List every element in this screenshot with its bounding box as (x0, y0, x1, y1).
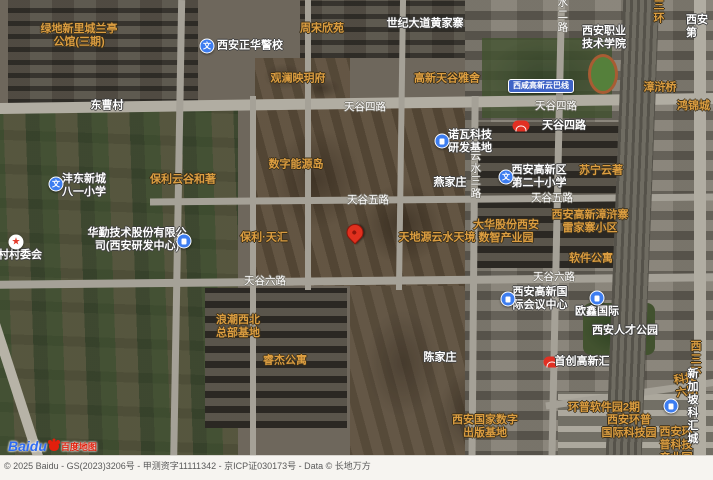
poi-label-vocational-college[interactable]: 西安职业 技术学院 (582, 25, 626, 51)
poi-label-huanpu-phase2[interactable]: 环普软件园2期 (568, 402, 640, 415)
poi-label-suning-yunzhu[interactable]: 苏宁云著 (579, 165, 623, 178)
poi-label-ruijie-apartment[interactable]: 睿杰公寓 (263, 355, 307, 368)
poi-label-zhenghua-school[interactable]: 西安正华警校 (217, 40, 283, 53)
poi-label-talent-park[interactable]: 西安人才公园 (592, 325, 658, 338)
poi-label-village-committee[interactable]: 村村委会 (0, 249, 42, 262)
poi-label-langchao-base[interactable]: 浪潮西北 总部基地 (216, 314, 260, 340)
poi-label-digital-publishing[interactable]: 西安国家数字 出版基地 (452, 414, 518, 440)
school-icon[interactable]: 文 (200, 39, 215, 54)
poi-label-greenland-lanting[interactable]: 绿地新里城兰亭 公馆(三期) (41, 23, 118, 49)
stadium-track (588, 54, 618, 94)
poi-label-huanpu-intl[interactable]: 西安环普 国际科技园 (602, 414, 657, 440)
company-icon[interactable] (177, 234, 192, 249)
school-icon-glyph: 文 (502, 173, 510, 181)
company-icon[interactable] (590, 291, 605, 306)
road-label-yunshui3: 云水三路 (469, 150, 481, 200)
building-glyph (595, 295, 600, 301)
company-icon[interactable] (664, 399, 679, 414)
poi-label-chenjiazhuang[interactable]: 陈家庄 (424, 352, 457, 365)
poi-label-dongcaocun[interactable]: 东曹村 (91, 100, 124, 113)
road-label-tiangu6-west: 天谷六路 (244, 275, 286, 287)
poi-label-kehuicheng[interactable]: 新加坡 科汇城 (683, 368, 703, 446)
road-label-tiangu5-east: 天谷五路 (531, 192, 573, 204)
yunba-logo-swoosh (516, 126, 527, 132)
poi-label-software-apartment[interactable]: 软件公寓 (569, 253, 613, 266)
poi-label-zhousong-xinyuan[interactable]: 周宋欣苑 (300, 23, 344, 36)
poi-label-bayi-school[interactable]: 沣东新城 八一小学 (62, 173, 106, 199)
baidu-wordmark: Baidu (8, 438, 47, 454)
baidu-maps-label: 百度地图 (61, 440, 97, 453)
school-icon-glyph: 文 (52, 180, 60, 188)
station-label-tiangu4[interactable]: 天谷四路 (542, 120, 586, 133)
building-glyph (440, 138, 445, 144)
satellite-patch-residential-topleft (8, 0, 198, 104)
baidu-logo: Baidu 百度地图 (8, 438, 97, 454)
map-canvas[interactable]: 绿地新里城兰亭 公馆(三期) 周宋欣苑 观澜映玥府 高新天谷雅舍 鸿锦城 漳浒桥… (0, 0, 713, 480)
company-icon[interactable] (435, 134, 450, 149)
poi-label-digital-energy-island[interactable]: 数字能源岛 (269, 159, 324, 172)
poi-label-tiandiyuan[interactable]: 天地源云水天境 (399, 232, 476, 245)
building-glyph (669, 403, 674, 409)
building-glyph (182, 238, 187, 244)
satellite-patch-farmland-left (0, 108, 238, 480)
poi-label-baoli-tianhui[interactable]: 保利·天汇 (240, 232, 288, 245)
school-icon[interactable]: 文 (499, 170, 514, 185)
road-label-tiangu4-east: 天谷四路 (535, 100, 577, 112)
road-label-tiangu4-west: 天谷四路 (344, 101, 386, 113)
road-label-tiangu6-east: 天谷六路 (533, 271, 575, 283)
map-pin-dot (351, 230, 357, 236)
yunba-station-icon[interactable] (513, 121, 530, 132)
poi-label-conference-center[interactable]: 西安高新国 际会议中心 (513, 286, 568, 312)
transit-line-badge[interactable]: 西咸高新云巴线 (508, 79, 574, 93)
poi-label-no20-school[interactable]: 西安高新区 第二十小学 (512, 164, 567, 190)
poi-label-leijiazhai[interactable]: 西安高新漳浒寨 雷家寨小区 (552, 209, 629, 235)
school-icon[interactable]: 文 (49, 177, 64, 192)
poi-label-yanjiazhuang[interactable]: 燕家庄 (434, 177, 467, 190)
road-label-xisanhuan-top: 西三环 (651, 0, 664, 25)
star-glyph: ★ (12, 237, 21, 247)
company-icon[interactable] (501, 292, 516, 307)
poi-label-zhanghu-bridge[interactable]: 漳浒桥 (644, 82, 677, 95)
road-vertical-2 (250, 96, 256, 480)
road-vertical-3 (305, 0, 311, 290)
poi-label-ouxin[interactable]: 欧鑫国际 (575, 306, 619, 319)
poi-label-dahua-park[interactable]: 大华股份西安 数智产业园 (473, 219, 539, 245)
government-star-icon[interactable]: ★ (9, 235, 24, 250)
poi-label-huaqin[interactable]: 华勤技术股份有限公 司(西安研发中心) (88, 227, 187, 253)
road-label-tiangu5-west: 天谷五路 (347, 194, 389, 206)
paw-icon (49, 441, 59, 451)
poi-label-guanlan-yingyuefu[interactable]: 观澜映玥府 (271, 73, 326, 86)
poi-label-shiji-huangjiazhai[interactable]: 世纪大道黄家寨 (387, 18, 464, 31)
building-glyph (506, 296, 511, 302)
poi-label-hongjincheng[interactable]: 鸿锦城 (677, 100, 710, 113)
poi-label-baoli-yungu[interactable]: 保利云谷和著 (150, 174, 216, 187)
station-label-shouchuang[interactable]: 首创高新汇 (555, 356, 610, 369)
copyright-text: © 2025 Baidu - GS(2023)3206号 - 甲测资字11111… (0, 456, 713, 472)
poi-label-xian-di-partial[interactable]: 西安 第 (686, 14, 708, 40)
road-label-yunshui2: 云水二路 (556, 0, 568, 34)
school-icon-glyph: 文 (203, 42, 211, 50)
attribution-bar: © 2025 Baidu - GS(2023)3206号 - 甲测资字11111… (0, 455, 713, 480)
poi-label-tiangu-yashe[interactable]: 高新天谷雅舍 (414, 73, 480, 86)
